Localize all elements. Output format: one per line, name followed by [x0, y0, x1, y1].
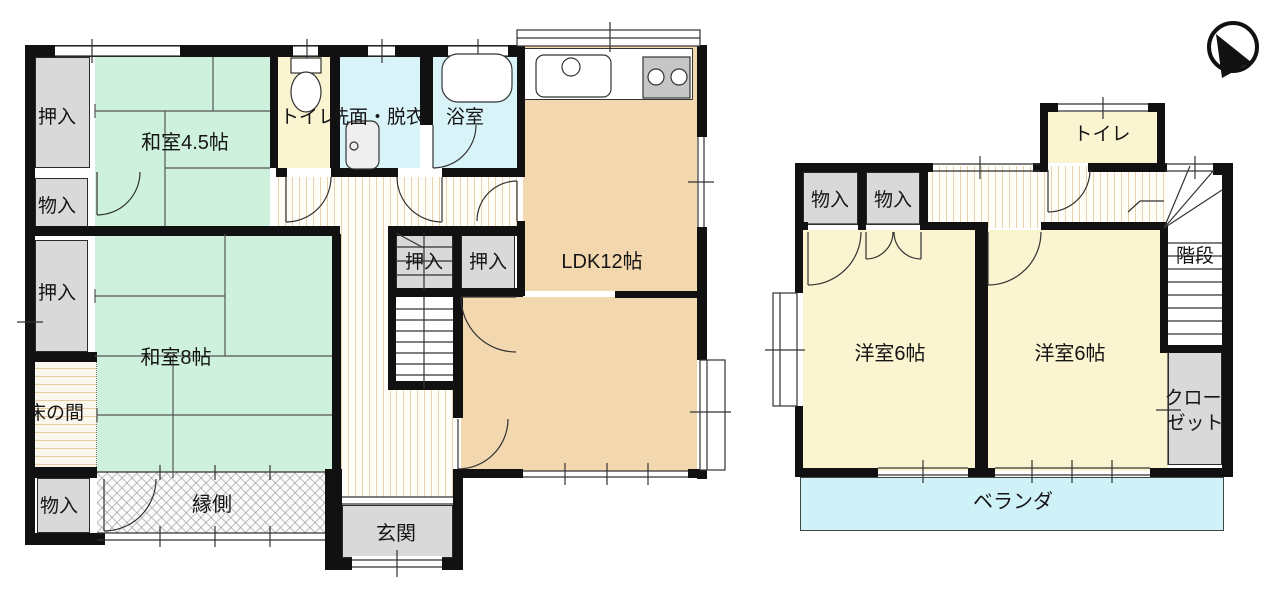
wall — [388, 381, 463, 390]
wall — [453, 478, 463, 568]
wall — [1222, 163, 1233, 477]
wall — [331, 168, 398, 177]
wall — [1040, 103, 1048, 172]
wall — [697, 470, 707, 479]
wall — [1157, 103, 1165, 172]
wall — [920, 163, 928, 230]
stairs-1f — [396, 297, 453, 390]
hallway-upper-1f — [278, 177, 517, 226]
room-washitsu-8 — [95, 234, 340, 478]
wall — [453, 288, 463, 418]
label-veranda: ベランダ — [973, 490, 1053, 514]
wall — [325, 558, 463, 570]
label-yoshitsu-right: 洋室6帖 — [1034, 342, 1105, 366]
wall — [1150, 468, 1233, 477]
north-arrow-icon — [1209, 23, 1257, 78]
label-monoire-upper: 物入 — [38, 196, 76, 219]
wall — [968, 468, 995, 477]
label-closet-line1: クロー — [1164, 388, 1221, 411]
kitchen-counter — [523, 48, 693, 100]
label-oshiire-top: 押入 — [38, 107, 76, 130]
wall — [1088, 163, 1167, 172]
label-ldk: LDK12帖 — [561, 250, 642, 274]
wall — [325, 469, 342, 568]
room-ldk-lower — [461, 297, 697, 471]
wall — [1041, 222, 1167, 230]
wall — [697, 227, 707, 360]
wall — [795, 468, 878, 477]
label-tokonoma: 床の間 — [27, 403, 84, 426]
label-stairs-2f: 階段 — [1176, 246, 1214, 269]
label-washitsu-8: 和室8帖 — [140, 346, 211, 370]
label-senmen-datsui: 洗面・脱衣 — [330, 107, 425, 130]
wall — [1148, 103, 1165, 112]
wall — [795, 406, 803, 477]
label-monoire-lower: 物入 — [40, 496, 78, 519]
wall — [25, 352, 97, 362]
wall — [858, 163, 866, 230]
wall — [388, 226, 396, 390]
floor-plan-canvas: 押入 和室4.5帖 トイレ 洗面・脱衣 浴室 LDK12帖 物入 押入 和室8帖… — [0, 0, 1276, 610]
bay-window-2f — [765, 293, 805, 406]
label-closet-line2: ゼット — [1166, 413, 1223, 436]
label-yoshitsu-left: 洋室6帖 — [854, 342, 925, 366]
wall — [453, 233, 461, 296]
wall — [453, 469, 523, 478]
wall — [270, 45, 278, 168]
wall — [1033, 163, 1048, 172]
label-oshiire-hall-l: 押入 — [405, 252, 443, 275]
label-engawa: 縁側 — [192, 493, 232, 517]
label-genkan: 玄関 — [376, 522, 416, 546]
wall — [697, 45, 707, 137]
wall — [1040, 103, 1058, 112]
label-oshiire-mid: 押入 — [38, 283, 76, 306]
label-monoire-2f-l: 物入 — [811, 190, 849, 213]
label-monoire-2f-r: 物入 — [874, 190, 912, 213]
wall — [615, 291, 697, 298]
genkan-step-lines — [342, 497, 453, 504]
wall — [1160, 345, 1222, 353]
wall — [975, 222, 988, 471]
wall — [25, 467, 97, 478]
wall — [276, 168, 287, 177]
wall — [332, 234, 341, 478]
hallway-lower-1f — [396, 390, 455, 497]
label-toilet-2f: トイレ — [1073, 124, 1130, 147]
wall — [795, 222, 808, 230]
wall — [25, 226, 340, 236]
wall — [1160, 225, 1168, 352]
wall — [442, 168, 517, 177]
wall — [25, 533, 105, 545]
label-bathroom: 浴室 — [446, 107, 484, 130]
label-toilet-1f: トイレ — [280, 107, 337, 130]
hallway-2f — [925, 166, 1167, 228]
wall — [517, 45, 525, 177]
label-washitsu-4-5: 和室4.5帖 — [141, 131, 229, 155]
label-oshiire-hall-r: 押入 — [469, 252, 507, 275]
